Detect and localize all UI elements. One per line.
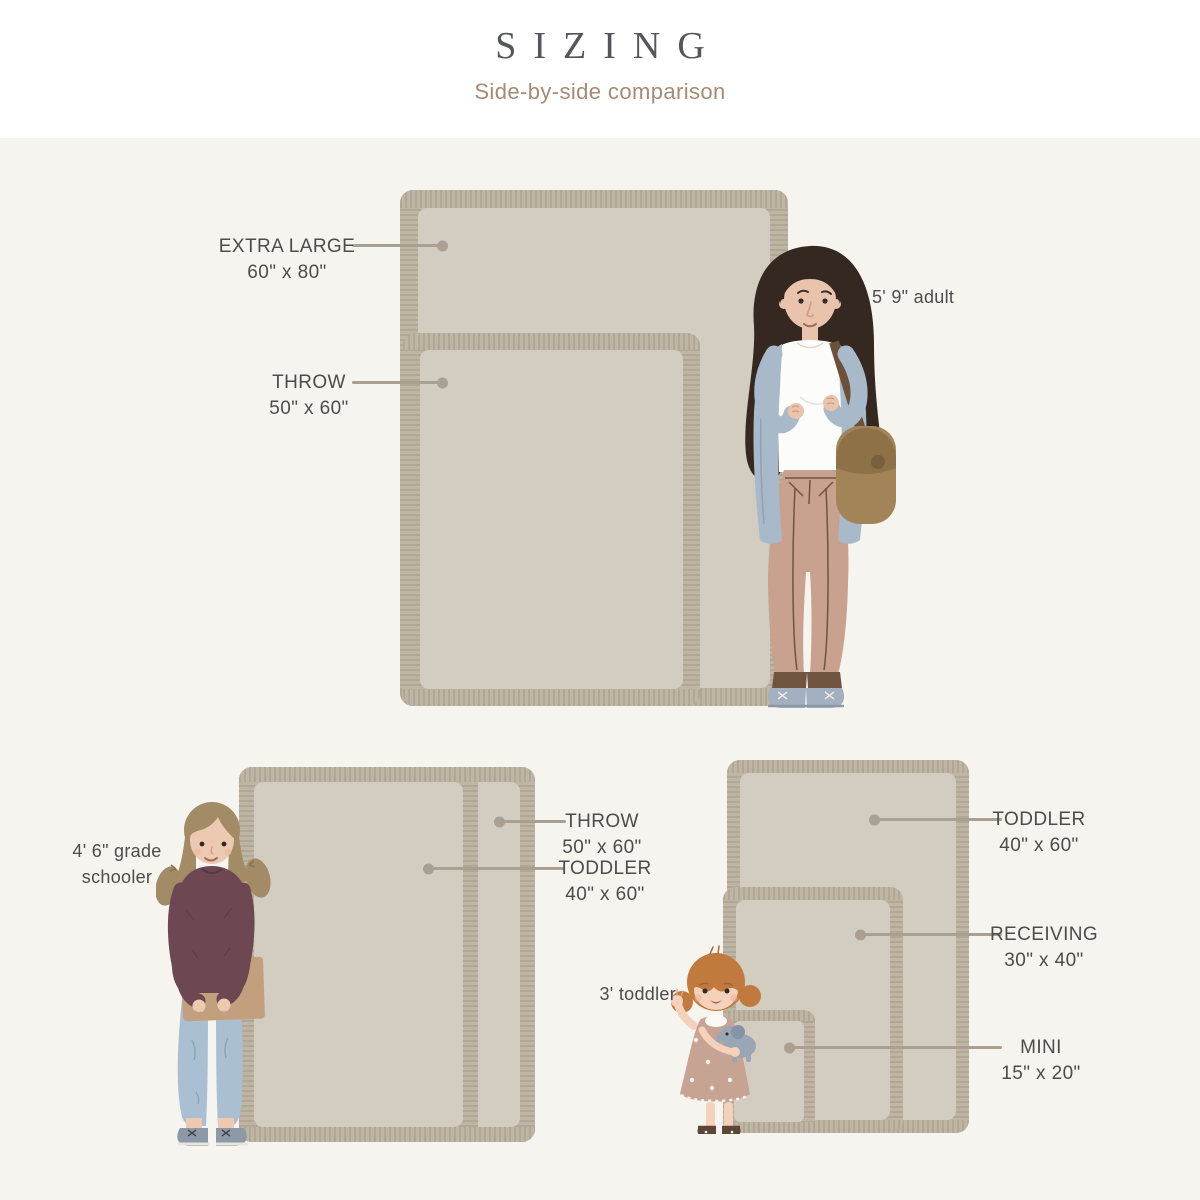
label-mini: MINI 15" x 20" <box>956 1035 1126 1087</box>
label-toddler-bottom-right: TODDLER 40" x 60" <box>954 807 1124 859</box>
leader-dot <box>869 814 880 825</box>
blanket-toddler-bottom-left <box>239 767 478 1142</box>
header: SIZING Side-by-side comparison <box>0 0 1200 138</box>
leader-dot <box>855 929 866 940</box>
grade-schooler-height-label: 4' 6" grade schooler <box>56 838 178 890</box>
blanket-size: 30" x 40" <box>959 948 1129 974</box>
blanket-throw-top <box>403 333 700 706</box>
adult-height-label: 5' 9" adult <box>872 284 954 310</box>
page-subtitle: Side-by-side comparison <box>0 79 1200 105</box>
blanket-size: 50" x 60" <box>224 396 394 422</box>
blanket-size: 15" x 20" <box>956 1061 1126 1087</box>
label-toddler-bottom-left: TODDLER 40" x 60" <box>520 856 690 908</box>
leader-dot <box>437 377 448 388</box>
blanket-size: 60" x 80" <box>202 260 372 286</box>
blanket-name: MINI <box>956 1035 1126 1061</box>
blanket-name: THROW <box>224 370 394 396</box>
blanket-name: EXTRA LARGE <box>202 234 372 260</box>
toddler-figure-illustration <box>648 944 778 1134</box>
sizing-infographic: SIZING Side-by-side comparison EXTRA LAR… <box>0 0 1200 1200</box>
blanket-size: 40" x 60" <box>520 882 690 908</box>
toddler-figure-svg <box>648 944 778 1134</box>
leader-dot <box>437 240 448 251</box>
blanket-name: THROW <box>517 809 687 835</box>
blanket-name: TODDLER <box>954 807 1124 833</box>
adult-figure-illustration <box>712 242 898 712</box>
blanket-name: RECEIVING <box>959 922 1129 948</box>
leader-dot <box>494 816 505 827</box>
toddler-height-label: 3' toddler <box>546 981 676 1007</box>
leader-dot <box>784 1042 795 1053</box>
label-throw-top: THROW 50" x 60" <box>224 370 394 422</box>
label-throw-bottom-left: THROW 50" x 60" <box>517 809 687 861</box>
label-receiving: RECEIVING 30" x 40" <box>959 922 1129 974</box>
blanket-size: 40" x 60" <box>954 833 1124 859</box>
label-extra-large: EXTRA LARGE 60" x 80" <box>202 234 372 286</box>
page-title: SIZING <box>0 24 1200 68</box>
blanket-name: TODDLER <box>520 856 690 882</box>
adult-figure-svg <box>712 242 898 712</box>
leader-dot <box>423 863 434 874</box>
